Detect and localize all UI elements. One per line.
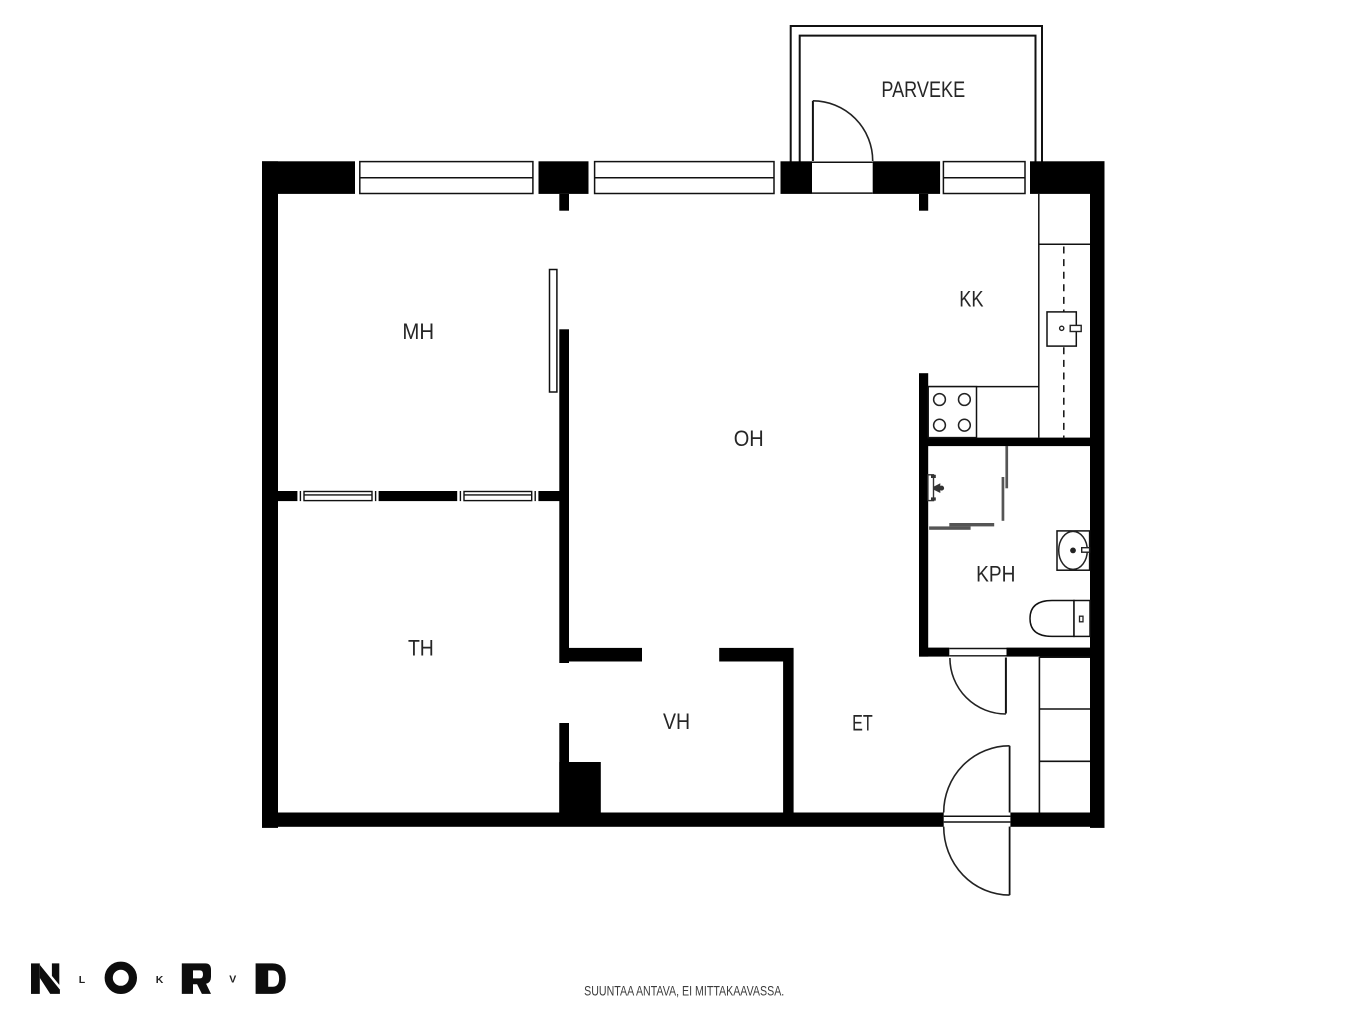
svg-text:V: V <box>229 973 236 985</box>
svg-text:OH: OH <box>734 426 764 451</box>
svg-text:SUUNTAA ANTAVA, EI MITTAKAAVAS: SUUNTAA ANTAVA, EI MITTAKAAVASSA. <box>584 983 784 999</box>
svg-text:VH: VH <box>663 709 690 734</box>
svg-text:MH: MH <box>402 319 434 344</box>
svg-text:KK: KK <box>959 287 984 312</box>
svg-text:KPH: KPH <box>976 561 1015 586</box>
svg-text:K: K <box>156 974 164 986</box>
svg-text:L: L <box>79 974 86 986</box>
svg-text:TH: TH <box>408 636 434 661</box>
svg-text:PARVEKE: PARVEKE <box>881 77 965 102</box>
svg-text:ET: ET <box>852 711 873 736</box>
